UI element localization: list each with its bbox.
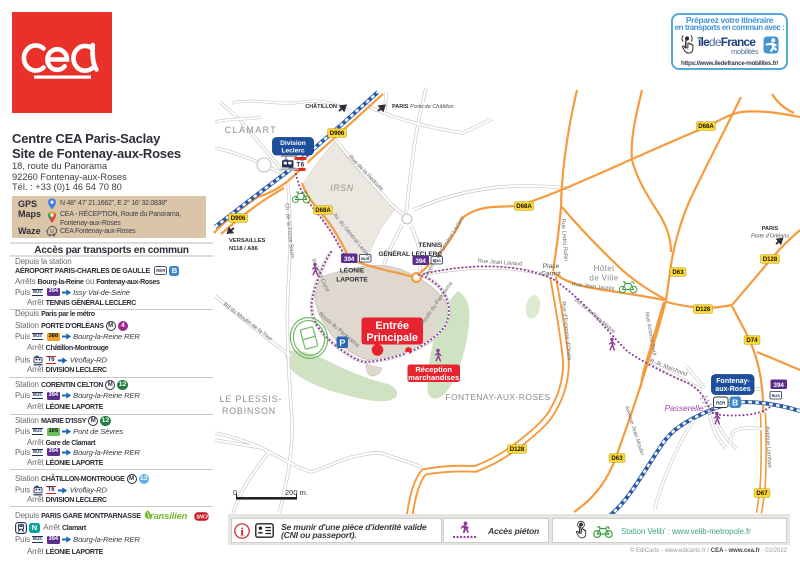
svg-text:N118 / A86: N118 / A86	[229, 246, 259, 252]
svg-text:CLAMART: CLAMART	[225, 125, 277, 135]
svg-text:SNCF: SNCF	[196, 514, 209, 520]
svg-text:B: B	[732, 397, 738, 407]
svg-text:Porte de Châtillon: Porte de Châtillon	[410, 104, 454, 110]
svg-text:FONTENAY-AUX-ROSES: FONTENAY-AUX-ROSES	[445, 392, 550, 402]
svg-text:CHÂTILLON: CHÂTILLON	[305, 103, 337, 110]
svg-text:D68A: D68A	[698, 123, 714, 130]
svg-text:IRSN: IRSN	[330, 183, 353, 193]
svg-text:R. R. Marchand: R. R. Marchand	[649, 358, 688, 378]
svg-text:PARIS: PARIS	[762, 226, 779, 232]
svg-text:PARIS: PARIS	[392, 104, 409, 110]
svg-text:de Ville: de Ville	[589, 274, 618, 283]
svg-text:VERSAILLES: VERSAILLES	[229, 238, 266, 244]
svg-text:Fontenay-: Fontenay-	[716, 378, 750, 385]
svg-text:Carnot: Carnot	[541, 271, 561, 278]
svg-text:Passerelle: Passerelle	[664, 403, 703, 413]
svg-text:D128: D128	[763, 256, 778, 263]
svg-text:D74: D74	[746, 337, 758, 344]
svg-text:394: 394	[344, 256, 355, 263]
svg-text:Bd de la République: Bd de la République	[573, 297, 616, 335]
svg-text:ransilien: ransilien	[150, 510, 188, 521]
svg-text:D68A: D68A	[315, 207, 331, 214]
svg-text:D63: D63	[611, 455, 623, 462]
svg-text:D68A: D68A	[516, 203, 532, 210]
svg-text:D63: D63	[672, 269, 684, 276]
svg-text:RER: RER	[716, 400, 726, 405]
svg-text:TENNIS: TENNIS	[418, 242, 442, 249]
svg-text:D906: D906	[231, 215, 246, 222]
svg-text:GÉNÉRAL LECLERC: GÉNÉRAL LECLERC	[378, 249, 442, 258]
svg-text:T6: T6	[296, 161, 304, 168]
svg-text:BUS: BUS	[772, 393, 781, 398]
svg-text:Rue Jean Jaurès: Rue Jean Jaurès	[571, 282, 615, 292]
svg-text:aux-Roses: aux-Roses	[715, 386, 751, 393]
svg-text:Leclerc: Leclerc	[281, 148, 304, 155]
svg-text:Division: Division	[280, 140, 306, 147]
svg-text:D67: D67	[756, 490, 768, 497]
svg-text:394: 394	[416, 258, 427, 265]
svg-text:D128: D128	[510, 446, 525, 453]
svg-text:marchandises: marchandises	[408, 373, 459, 382]
svg-text:Entrée: Entrée	[375, 320, 409, 332]
svg-text:Rue Ledru Rollin: Rue Ledru Rollin	[560, 219, 569, 262]
svg-text:Hôtel: Hôtel	[594, 264, 615, 273]
svg-text:Bd du Moulin de la Tour: Bd du Moulin de la Tour	[222, 302, 273, 343]
svg-text:Place: Place	[543, 263, 560, 270]
svg-text:LÉONIE: LÉONIE	[340, 266, 365, 275]
svg-text:D128: D128	[696, 306, 711, 313]
svg-text:ROBINSON: ROBINSON	[222, 406, 276, 416]
svg-text:D906: D906	[330, 130, 345, 137]
svg-text:i: i	[240, 524, 244, 538]
svg-text:394: 394	[774, 382, 785, 389]
svg-text:Ch. de la Fosse Bazin: Ch. de la Fosse Bazin	[283, 203, 295, 259]
svg-text:LAPORTE: LAPORTE	[336, 277, 368, 284]
svg-text:LE PLESSIS-: LE PLESSIS-	[220, 394, 283, 404]
svg-text:Principale: Principale	[366, 332, 418, 344]
svg-text:Porte d'Orléans: Porte d'Orléans	[751, 234, 789, 240]
